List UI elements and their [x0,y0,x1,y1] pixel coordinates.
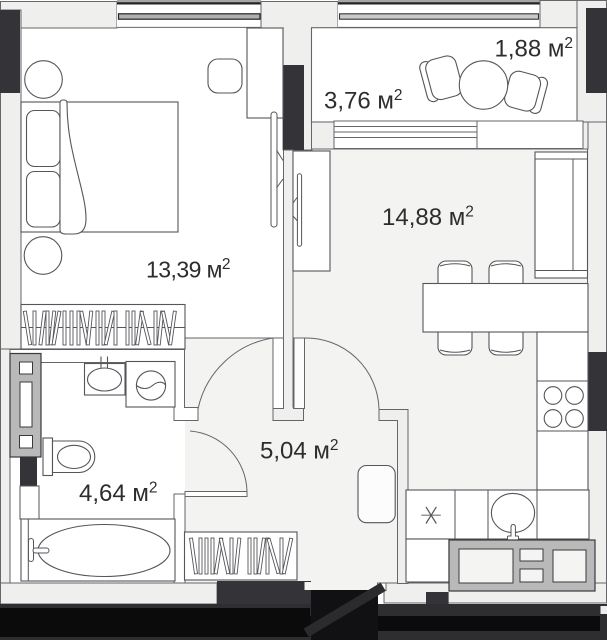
svg-text:5,04 м2: 5,04 м2 [260,437,339,465]
svg-text:13,39 м2: 13,39 м2 [146,256,230,283]
svg-text:14,88 м2: 14,88 м2 [382,204,474,232]
svg-text:1,88 м2: 1,88 м2 [495,35,574,63]
svg-text:4,64 м2: 4,64 м2 [79,480,158,508]
svg-text:3,76 м2: 3,76 м2 [324,87,403,115]
